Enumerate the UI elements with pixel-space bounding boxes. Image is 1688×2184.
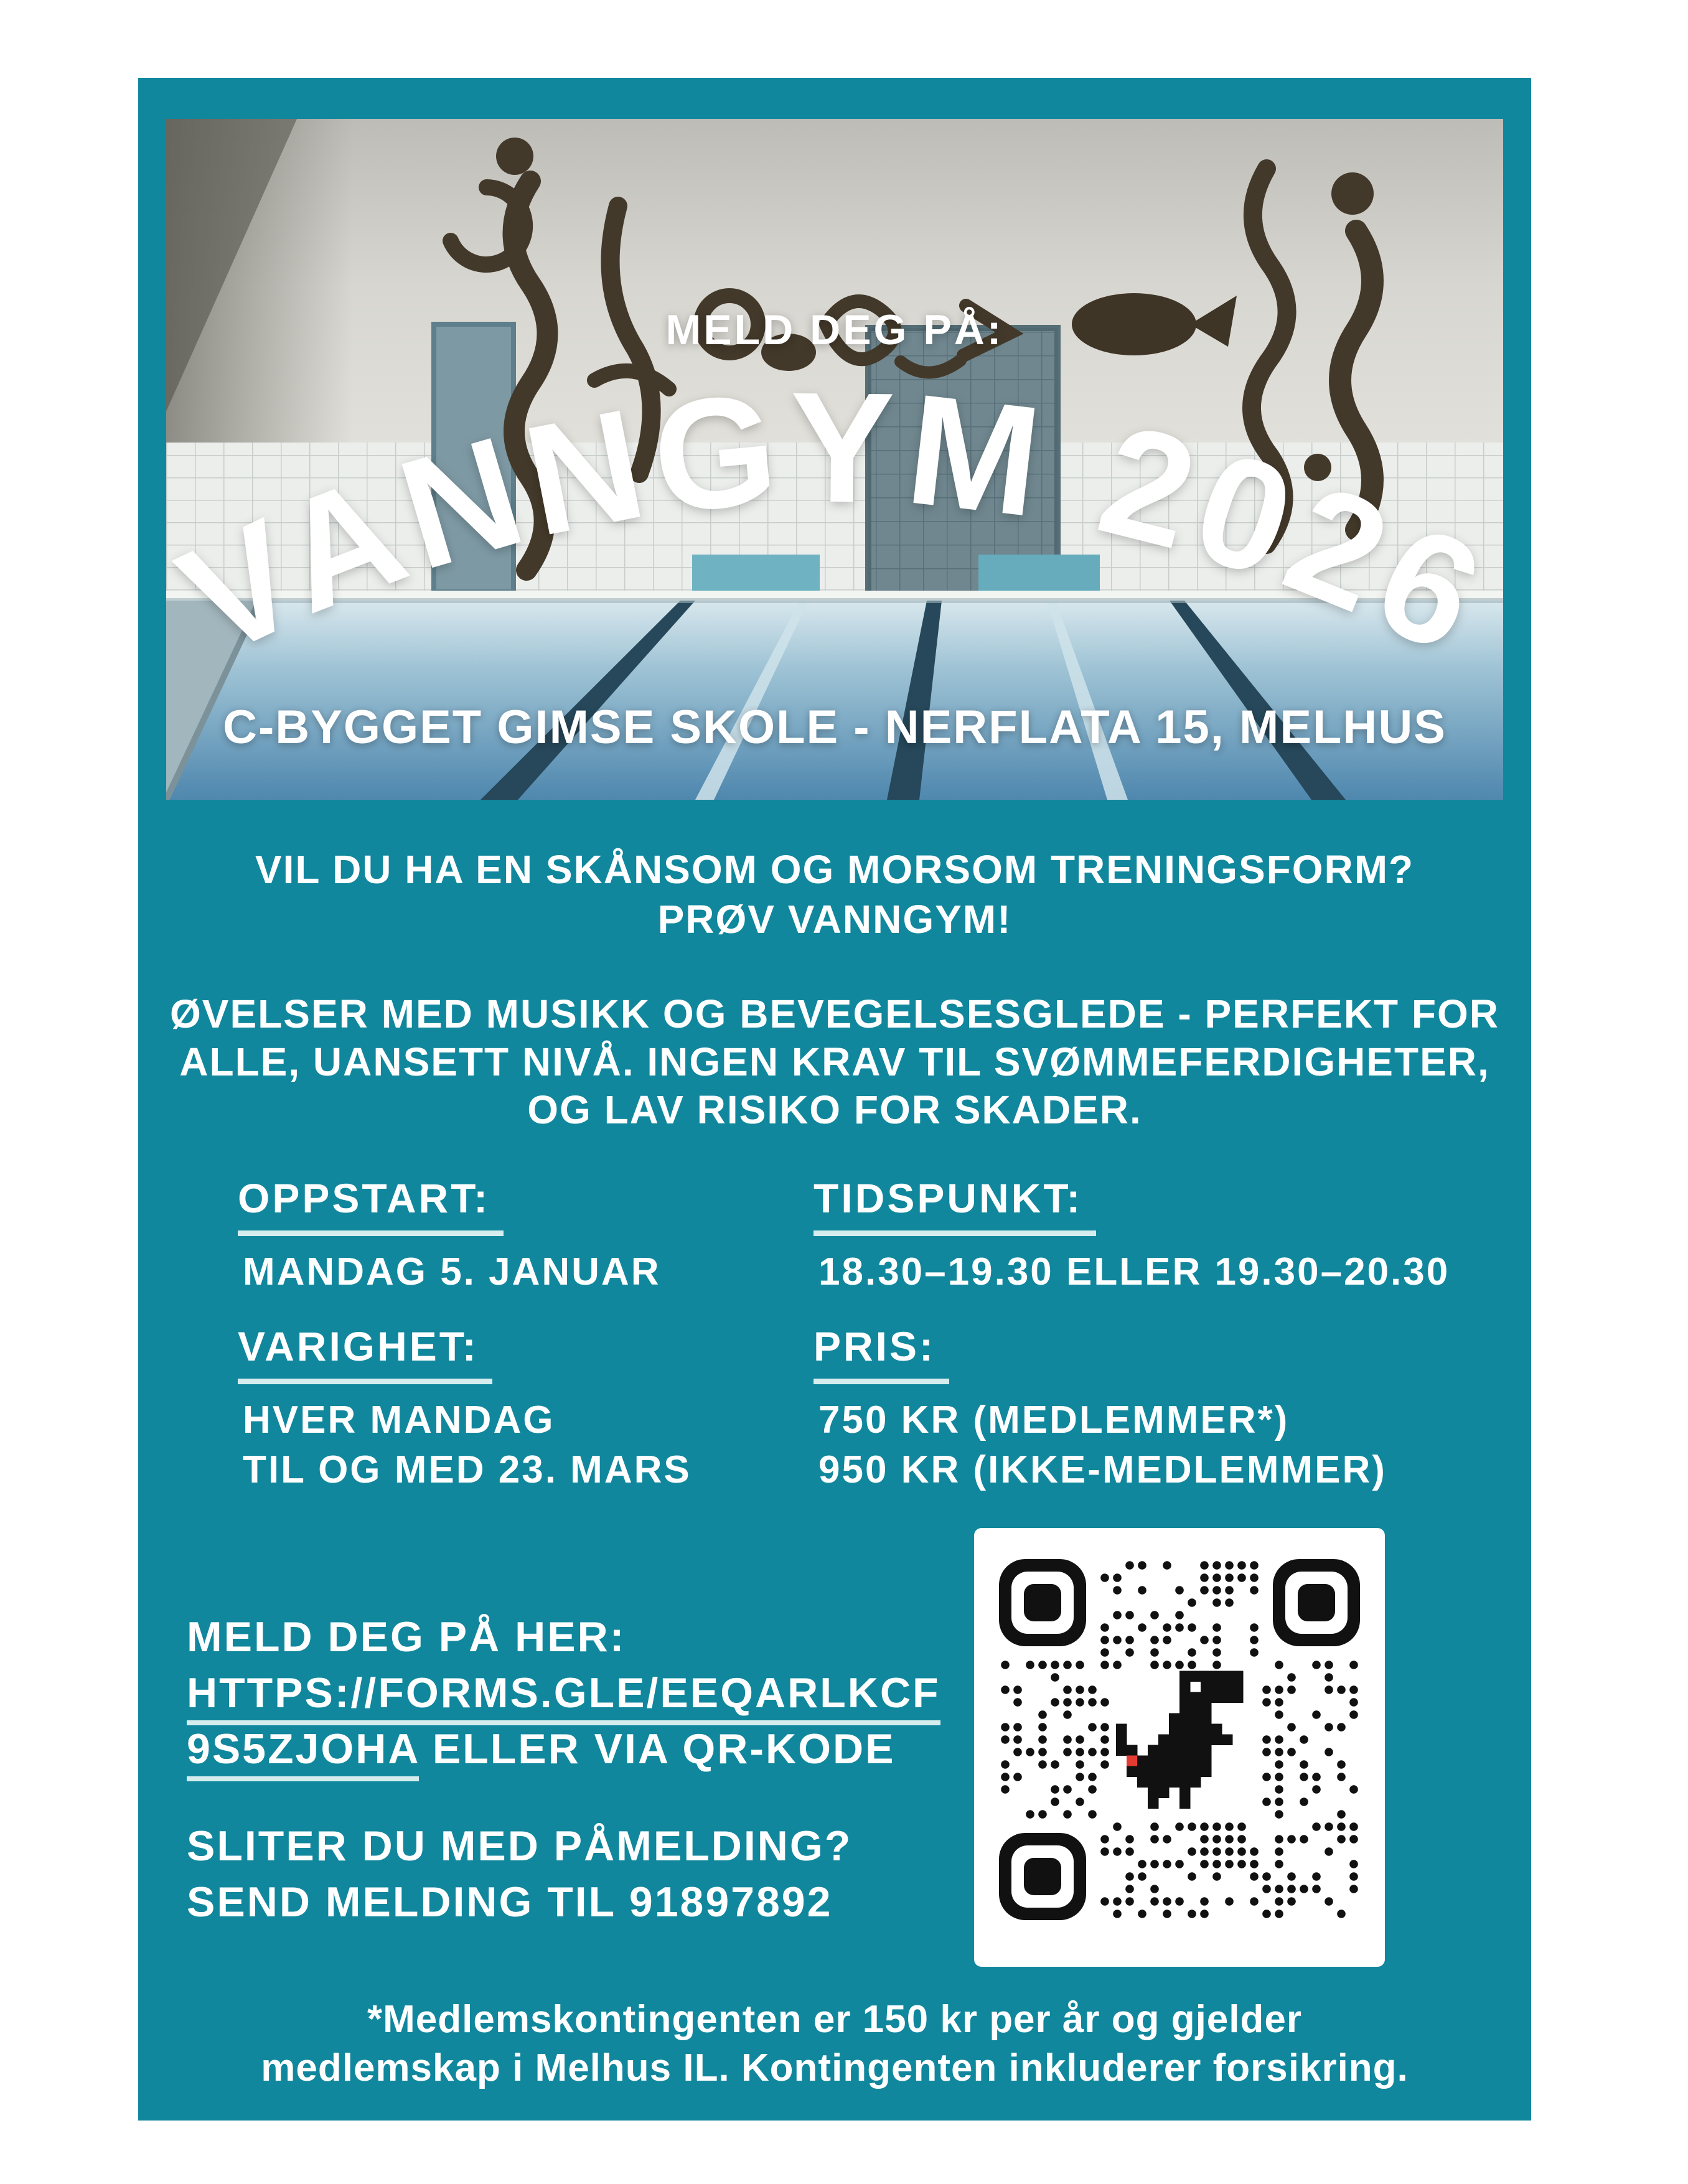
- signup-url-line2: 9S5ZJOHA ELLER VIA QR-KODE: [187, 1721, 940, 1777]
- intro-paragraph: ØVELSER MED MUSIKK OG BEVEGELSESGLEDE - …: [138, 990, 1531, 1134]
- signup-url-line1: HTTPS://FORMS.GLE/EEQARLKCF: [187, 1665, 940, 1721]
- pool-photo: MELD DEG PÅ: VANNGYM 2026 C-BYGGET GIMSE…: [166, 119, 1503, 800]
- pris-value: 750 KR (MEDLEMMER*) 950 KR (IKKE-MEDLEMM…: [814, 1395, 1387, 1495]
- svg-text:VANNGYM 2026: VANNGYM 2026: [166, 360, 1503, 689]
- signup-heading: MELD DEG PÅ HER:: [187, 1609, 940, 1665]
- tidspunkt-value: 18.30–19.30 ELLER 19.30–20.30: [814, 1247, 1450, 1297]
- oppstart-value: MANDAG 5. JANUAR: [238, 1247, 660, 1297]
- signup-url-link-part1[interactable]: HTTPS://FORMS.GLE/EEQARLKCF: [187, 1669, 940, 1725]
- poster-page: MELD DEG PÅ: VANNGYM 2026 C-BYGGET GIMSE…: [0, 0, 1688, 2184]
- oppstart-label: OPPSTART:: [238, 1174, 504, 1236]
- detail-tidspunkt: TIDSPUNKT: 18.30–19.30 ELLER 19.30–20.30: [814, 1174, 1450, 1297]
- arch-title: VANNGYM 2026: [166, 119, 1503, 800]
- vanngym-poster: MELD DEG PÅ: VANNGYM 2026 C-BYGGET GIMSE…: [138, 78, 1531, 2121]
- signup-help-text: SLITER DU MED PÅMELDING? SEND MELDING TI…: [187, 1818, 852, 1930]
- address-line: C-BYGGET GIMSE SKOLE - NERFLATA 15, MELH…: [166, 700, 1503, 754]
- qr-code-dino-icon: [974, 1528, 1385, 1967]
- varighet-value: HVER MANDAG TIL OG MED 23. MARS: [238, 1395, 692, 1495]
- pris-label: PRIS:: [814, 1323, 949, 1384]
- signup-url-link-part2[interactable]: 9S5ZJOHA: [187, 1725, 419, 1781]
- detail-varighet: VARIGHET: HVER MANDAG TIL OG MED 23. MAR…: [238, 1323, 692, 1495]
- intro-headline: VIL DU HA EN SKÅNSOM OG MORSOM TRENINGSF…: [138, 845, 1531, 944]
- detail-oppstart: OPPSTART: MANDAG 5. JANUAR: [238, 1174, 660, 1297]
- detail-pris: PRIS: 750 KR (MEDLEMMER*) 950 KR (IKKE-M…: [814, 1323, 1387, 1495]
- signup-block: MELD DEG PÅ HER: HTTPS://FORMS.GLE/EEQAR…: [187, 1609, 940, 1777]
- kicker-text: MELD DEG PÅ:: [166, 306, 1503, 354]
- varighet-label: VARIGHET:: [238, 1323, 492, 1384]
- tidspunkt-label: TIDSPUNKT:: [814, 1174, 1096, 1236]
- footer-note: *Medlemskontingenten er 150 kr per år og…: [138, 1995, 1531, 2093]
- arch-title-text: VANNGYM 2026: [166, 360, 1503, 689]
- signup-url-rest: ELLER VIA QR-KODE: [419, 1725, 896, 1773]
